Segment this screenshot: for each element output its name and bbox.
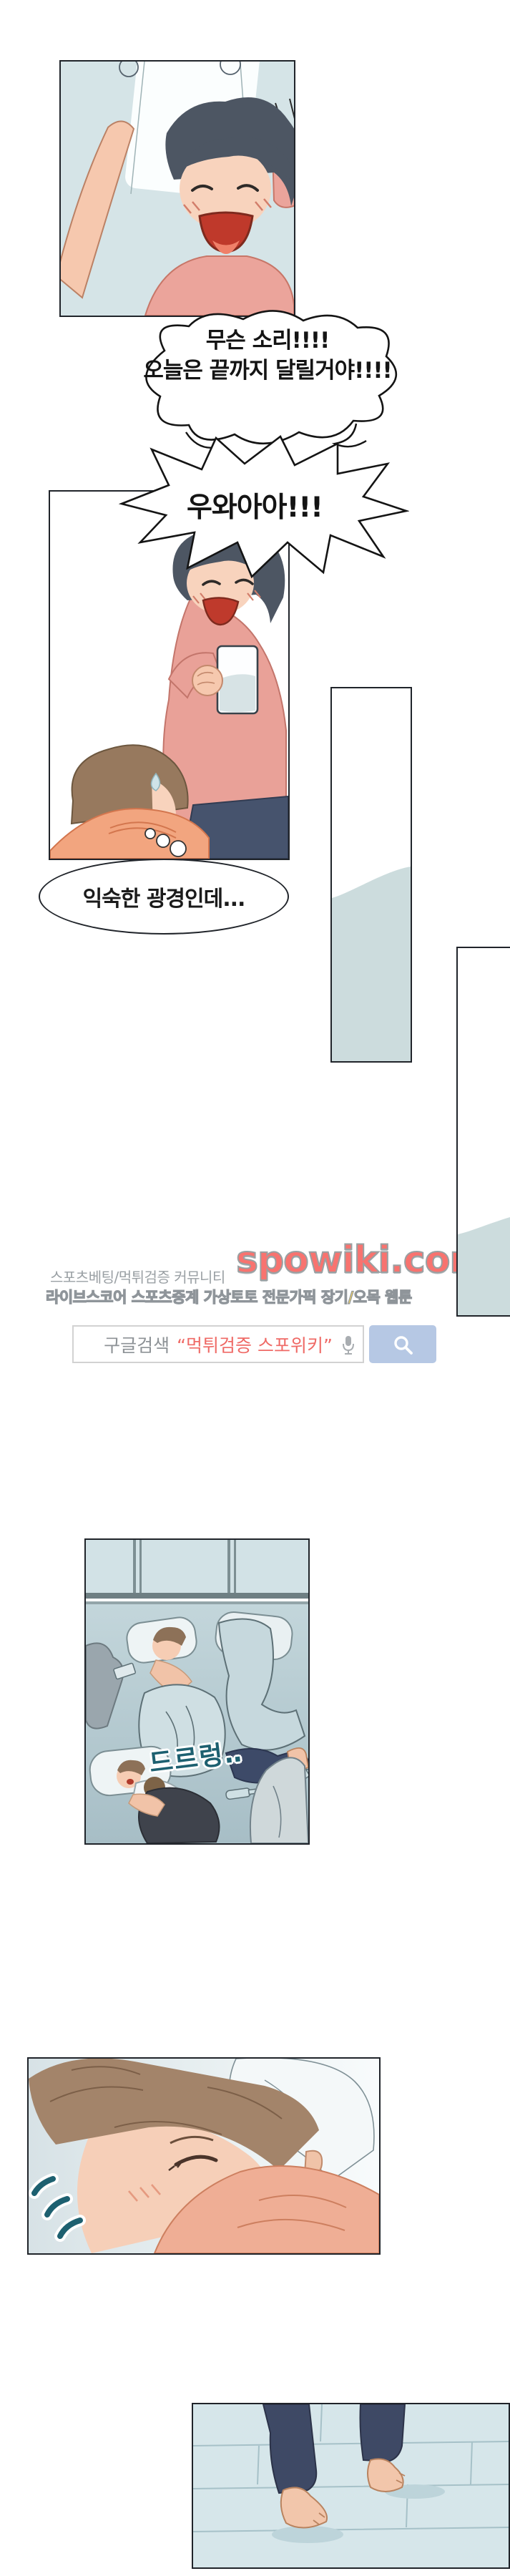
milk-glass-2-art: [458, 948, 510, 1315]
milk-glass-1-art: [332, 688, 411, 1061]
panel1-art: [61, 62, 294, 316]
milk-glass-inset-1: [330, 687, 412, 1063]
panel-bedroom-overhead: [84, 1538, 310, 1845]
milk-glass-inset-2: [456, 947, 510, 1317]
mic-icon[interactable]: [341, 1335, 355, 1355]
ad-community-label: 스포츠베팅/먹튀검증 커뮤니티: [50, 1266, 225, 1287]
thought-bubble: 익숙한 광경인데...: [39, 859, 289, 935]
webtoon-page: 무슨 소리!!!! 오늘은 끝까지 달릴거야!!!! 우와아아!!!: [0, 0, 510, 2576]
ad-features-line: 라이브스코어 스포츠중계 가상토토 전문가픽 장기/오목 웹툰: [46, 1286, 412, 1307]
speech-bubble-shout2: 우와아아!!!: [100, 434, 409, 580]
search-icon: [392, 1334, 413, 1355]
bubble2-text: 우와아아!!!: [100, 489, 409, 527]
thought-text: 익숙한 광경인데...: [83, 881, 245, 912]
panel-walking-feet: [192, 2403, 510, 2569]
bubble1-text: 무슨 소리!!!! 오늘은 끝까지 달릴거야!!!!: [120, 326, 415, 386]
ad-search-query: “먹튀검증 스포위키”: [177, 1332, 333, 1357]
ad-banner[interactable]: 스포츠베팅/먹튀검증 커뮤니티 spowiki.com 라이브스코어 스포츠중계…: [0, 1234, 510, 1377]
panel3-art: [86, 1540, 308, 1843]
ad-search-button[interactable]: [369, 1325, 436, 1363]
ad-search-input[interactable]: 구글검색 “먹튀검증 스포위키”: [72, 1325, 364, 1363]
panel5-art: [193, 2404, 509, 2567]
ad-site-name[interactable]: spowiki.com: [236, 1241, 488, 1279]
panel-sleeping-closeup: [27, 2057, 381, 2255]
panel-cheering-guy: [59, 60, 295, 317]
panel4-art: [29, 2059, 379, 2253]
ad-search-prefix: 구글검색: [104, 1332, 170, 1357]
